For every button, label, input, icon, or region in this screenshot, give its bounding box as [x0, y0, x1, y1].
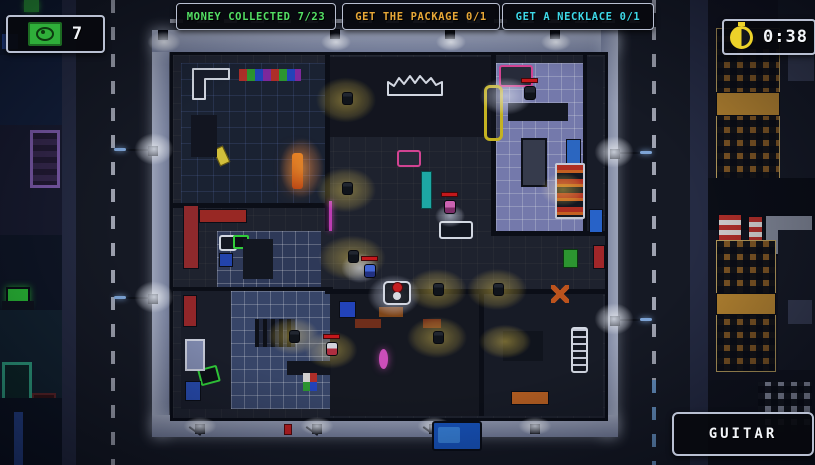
lamp-arm [618, 319, 642, 321]
objective-progress: 7/23 [298, 11, 326, 23]
wall [479, 289, 484, 416]
road-marking [652, 380, 656, 465]
timer-value: 0:38 [763, 27, 808, 47]
street-lamp [148, 294, 158, 304]
npc-character [524, 86, 536, 100]
furniture-cabinet [191, 115, 217, 157]
alert-bar [441, 192, 458, 197]
map-viewport[interactable] [170, 52, 608, 421]
money-counter-value: 7 [72, 24, 83, 44]
guard-character [433, 331, 444, 344]
street-lamp [330, 29, 340, 39]
timer-panel: 0:38 [722, 19, 815, 55]
lamp-arm [618, 152, 642, 154]
furniture-bench [379, 307, 403, 317]
bed [185, 339, 205, 371]
glowing-couch [292, 153, 303, 189]
far-sidewalk [690, 0, 708, 465]
rooftop [0, 398, 62, 465]
objective-label: MONEY COLLECTED [187, 11, 291, 23]
furniture-table [423, 319, 441, 328]
street-lamp [610, 316, 620, 326]
furniture-locker [183, 205, 199, 269]
street-lamp [610, 149, 620, 159]
objective-progress: 0/1 [620, 11, 641, 23]
orange-counter [511, 391, 549, 405]
lamp-fixture [114, 148, 126, 151]
yellow-rug [484, 85, 503, 141]
lamp-fixture [114, 296, 126, 299]
item-slot-label: GUITAR [709, 426, 778, 442]
green-dumpster [563, 249, 578, 268]
window-frame [788, 300, 812, 324]
objective-label: GET THE PACKAGE [355, 11, 459, 23]
back-table [503, 331, 543, 361]
lamp-arm [126, 149, 150, 151]
guard-character [342, 182, 353, 195]
item-slot-panel: GUITAR [672, 412, 814, 456]
room-storage [587, 57, 603, 233]
stopwatch-nub [738, 22, 745, 26]
lamp-arm [126, 297, 150, 299]
guard-character [493, 283, 504, 296]
blue-door [589, 209, 603, 233]
neon-strip [329, 201, 332, 231]
objective-necklace: GET A NECKLACE 0/1 [502, 3, 654, 30]
lit-window [24, 0, 39, 12]
window-frame [30, 130, 60, 188]
game-screen: 7 MONEY COLLECTED 7/23 GET THE PACKAGE 0… [0, 0, 815, 465]
alert-bar [521, 78, 538, 83]
guard-character [289, 330, 300, 343]
kitchen-counter [508, 103, 568, 121]
fridge [521, 138, 547, 187]
lamp-fixture [640, 318, 652, 321]
rooftop [0, 55, 62, 125]
city-block-left [0, 0, 62, 465]
teal-counter [421, 171, 432, 209]
money-counter-panel: 7 [6, 15, 105, 53]
red-box [593, 245, 605, 269]
street-lamp [445, 29, 455, 39]
guard-character [342, 92, 353, 105]
player-character[interactable] [383, 281, 411, 305]
city-block-right [708, 0, 815, 465]
wall [491, 55, 496, 233]
objective-label: GET A NECKLACE [516, 11, 613, 23]
blue-crate [339, 301, 356, 318]
crown-object [386, 71, 444, 97]
room-dark [330, 57, 491, 137]
colored-crate [303, 373, 317, 391]
npc-character [364, 264, 376, 278]
blue-door [566, 139, 581, 165]
kitchen-machine [499, 65, 533, 87]
street-lamp [148, 146, 158, 156]
npc-character [444, 200, 456, 214]
office-desk [243, 239, 273, 279]
money-bill-icon [28, 22, 62, 46]
blue-cabinet [185, 381, 201, 401]
far-sidewalk [62, 0, 76, 465]
sidewalk-top [152, 30, 618, 52]
objective-package: GET THE PACKAGE 0/1 [342, 3, 500, 30]
pink-rug [379, 349, 388, 369]
stopwatch-icon [730, 26, 753, 49]
street-lamp [550, 29, 560, 39]
objective-progress: 0/1 [466, 11, 487, 23]
npc-character [326, 342, 338, 356]
furniture-shelf [199, 209, 247, 223]
bill-oval [36, 27, 54, 41]
shutter-rack [571, 327, 588, 373]
alert-bar [323, 334, 340, 339]
vending-machine [555, 163, 585, 219]
bill-dot [41, 30, 45, 34]
guard-character [348, 250, 359, 263]
orange-fan [551, 285, 569, 303]
room-office-lower [231, 291, 333, 409]
car-roof [438, 427, 460, 443]
red-locker [183, 295, 197, 327]
guard-character [433, 283, 444, 296]
facade-band [716, 293, 776, 315]
road-marking [111, 0, 115, 465]
couch-outline [191, 67, 231, 101]
car [432, 421, 482, 451]
lamp-fixture [640, 151, 652, 154]
road-marking [652, 0, 656, 380]
furniture-crate [219, 253, 233, 267]
bench-outline [439, 221, 473, 239]
facade-band [716, 92, 780, 116]
player-body [393, 292, 401, 300]
pillar [14, 412, 23, 465]
wall [173, 287, 333, 291]
street-lamp [530, 424, 540, 434]
furniture-table [355, 319, 381, 328]
alert-bar [361, 256, 378, 261]
arcade-shelf [239, 69, 301, 81]
sidewalk-left [152, 30, 169, 437]
objective-money: MONEY COLLECTED 7/23 [176, 3, 336, 30]
wall [491, 231, 605, 236]
street-lamp [158, 30, 168, 40]
neon-frame [397, 150, 421, 167]
fire-hydrant [284, 424, 292, 435]
window-frame [788, 55, 814, 81]
